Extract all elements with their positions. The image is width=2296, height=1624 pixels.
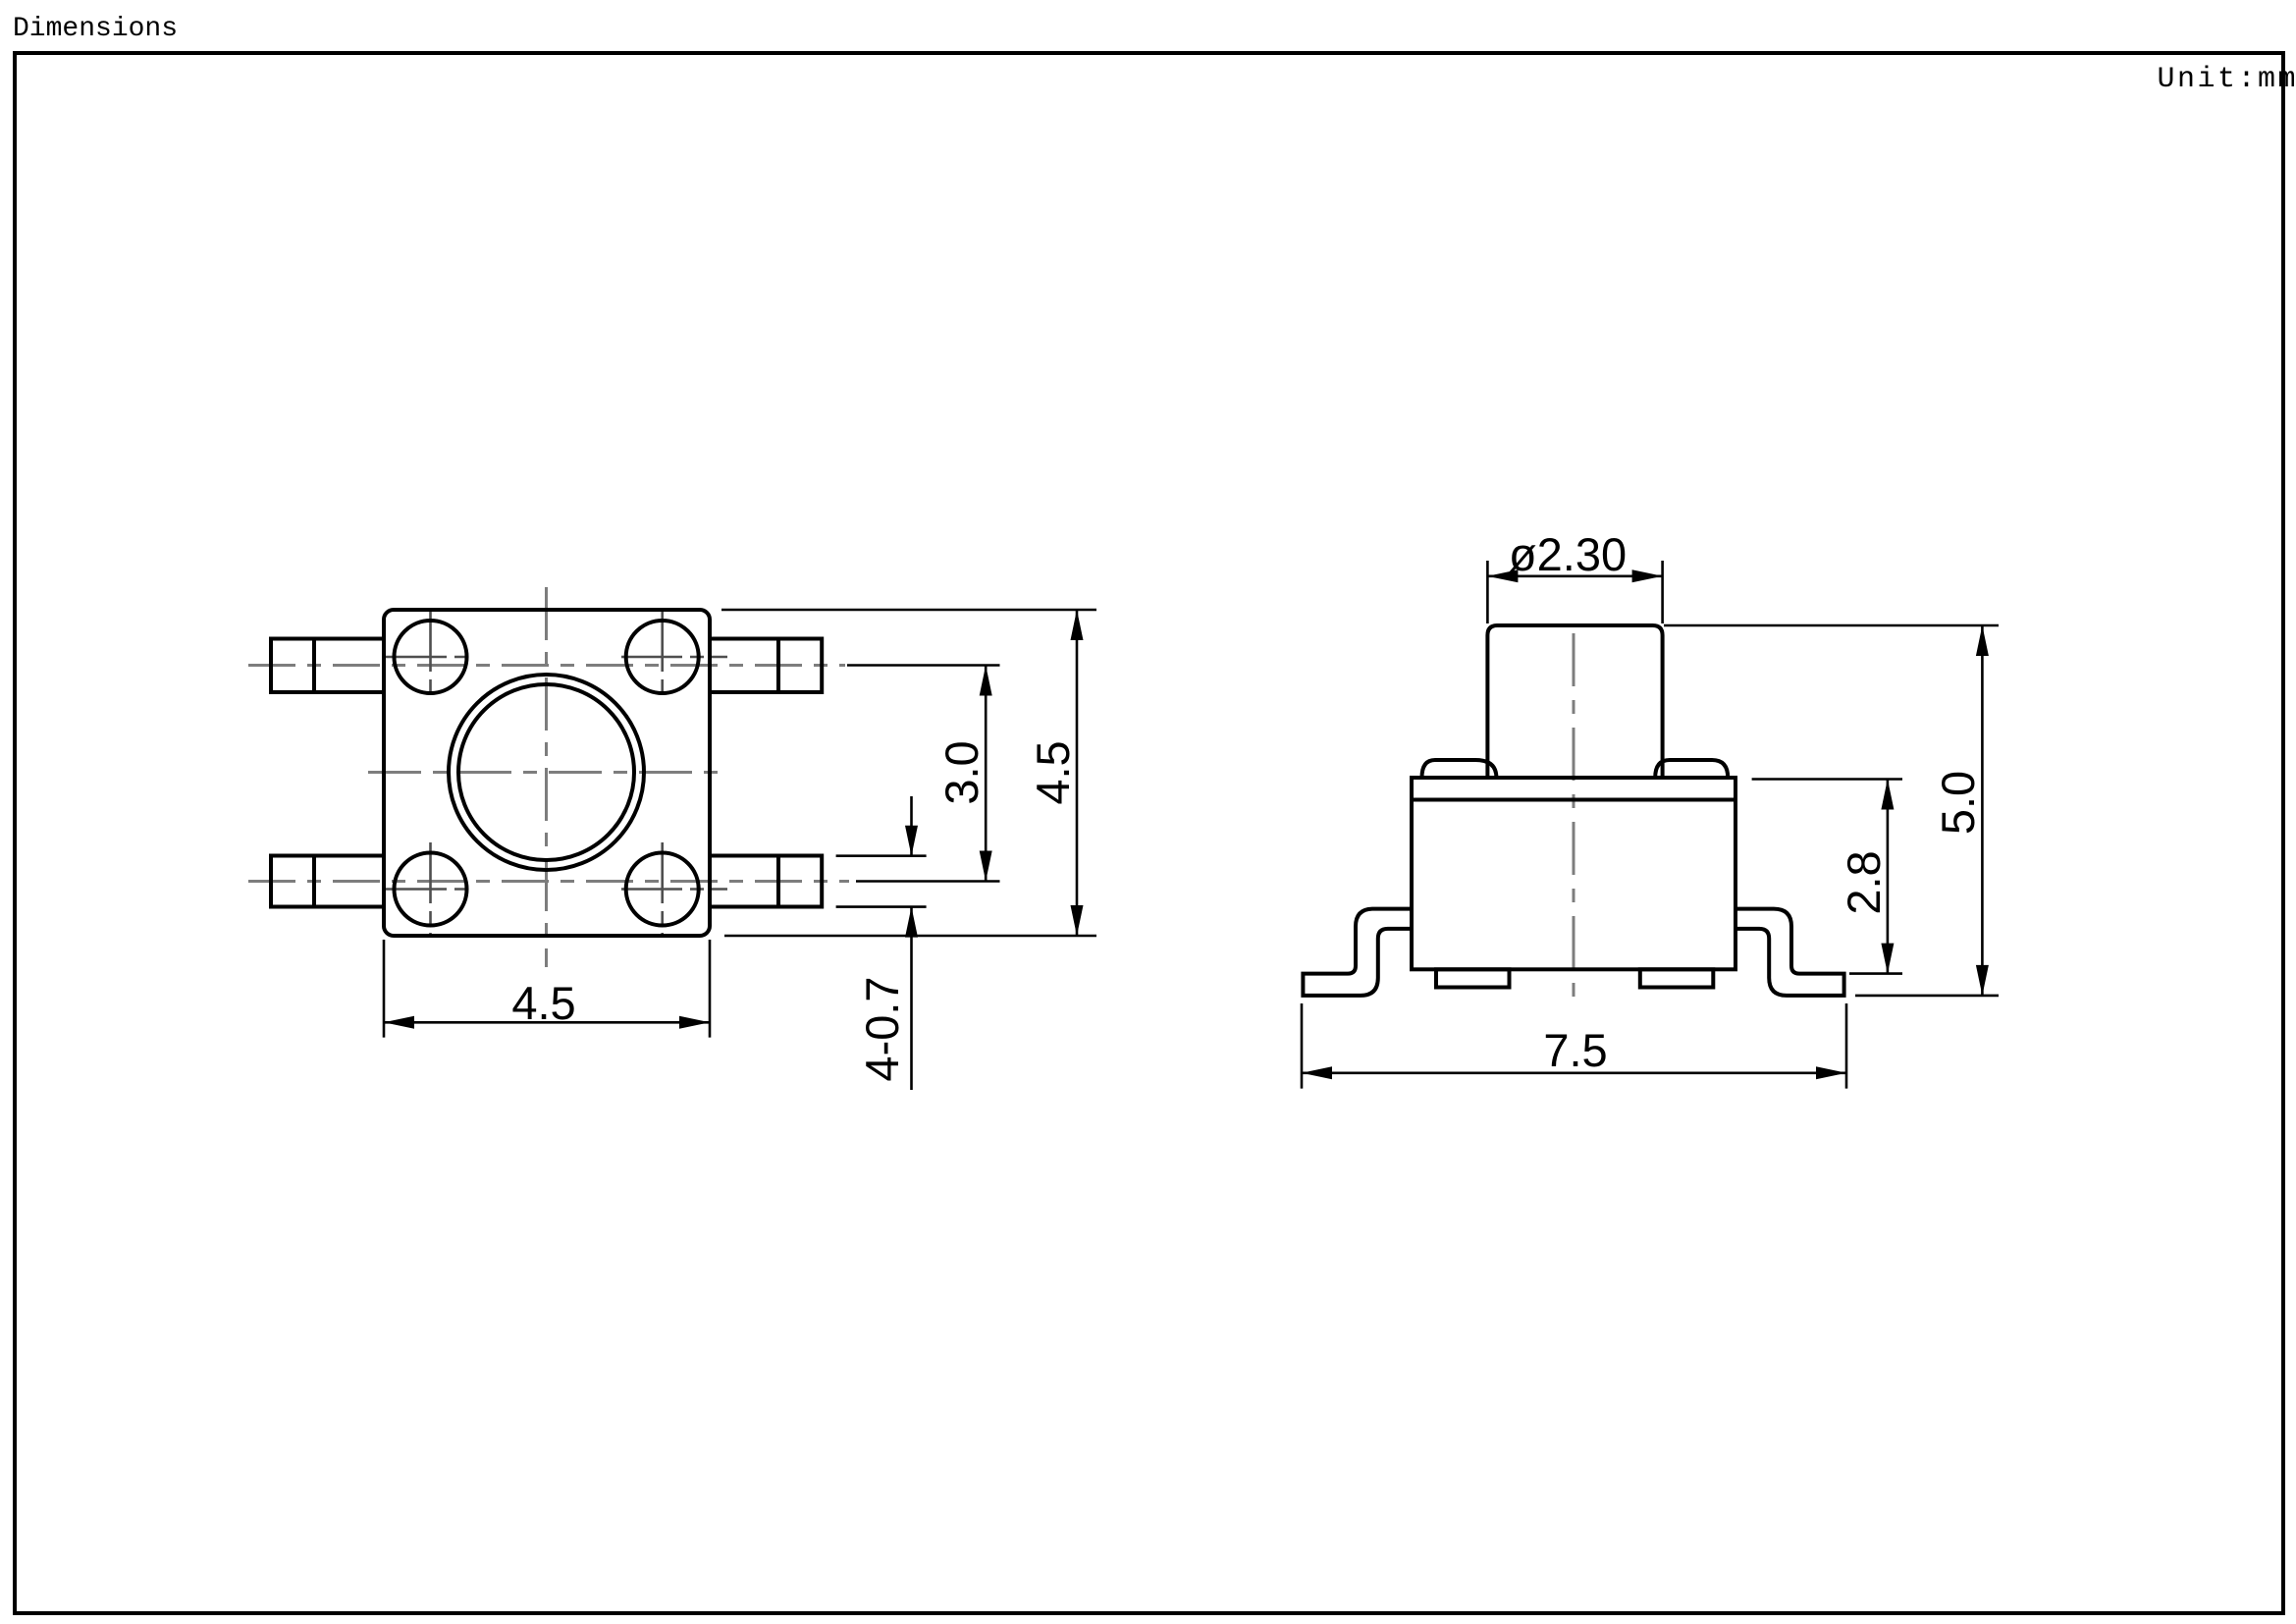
- svg-text:7.5: 7.5: [1543, 1024, 1607, 1076]
- svg-text:2.8: 2.8: [1838, 850, 1890, 914]
- svg-text:4.5: 4.5: [511, 977, 575, 1029]
- svg-text:Unit:mm: Unit:mm: [2157, 63, 2296, 96]
- svg-text:ø2.30: ø2.30: [1509, 528, 1627, 580]
- svg-text:4-0.7: 4-0.7: [856, 976, 908, 1081]
- svg-text:3.0: 3.0: [935, 740, 988, 804]
- svg-text:Dimensions: Dimensions: [13, 14, 178, 44]
- svg-text:4.5: 4.5: [1027, 740, 1079, 804]
- svg-text:5.0: 5.0: [1932, 771, 1984, 835]
